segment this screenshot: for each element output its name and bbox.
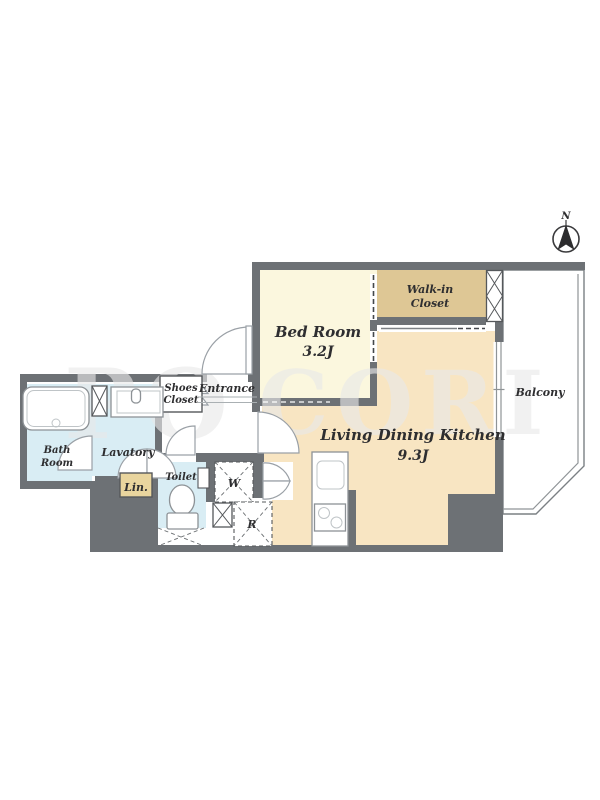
- kitchen-counter: [312, 452, 348, 546]
- compass: N: [553, 211, 579, 252]
- pipe-space-wr: [213, 503, 232, 527]
- washer-door-bottom: [263, 481, 290, 499]
- ldk-label: Living Dining Kitchen: [319, 426, 505, 444]
- entrance-door-leaf: [246, 326, 252, 374]
- bedroom-size: 3.2J: [303, 344, 335, 360]
- toilet-counter-box: [198, 468, 209, 488]
- bedroom-wic-slider: [370, 274, 377, 320]
- lavatory-label: Lavatory: [101, 446, 157, 459]
- shoes-closet-label-2: Closet: [163, 395, 198, 406]
- balcony-label: Balcony: [514, 386, 566, 399]
- bath-label-2: Room: [40, 458, 73, 469]
- ldk-size: 9.3J: [398, 448, 430, 464]
- washer-mark: W: [228, 477, 242, 490]
- shoes-closet-label-1: Shoes: [164, 383, 198, 394]
- washer-door-top: [263, 463, 290, 481]
- linen-label: Lin.: [123, 481, 148, 494]
- toilet-label: Toilet: [165, 472, 197, 483]
- shoes-closet-box: [160, 376, 202, 412]
- toilet-service-area: [158, 528, 204, 546]
- refrigerator-mark: R: [246, 518, 256, 531]
- pipe-space-bath: [92, 386, 107, 416]
- bathtub: [23, 387, 89, 430]
- bedroom-label: Bed Room: [274, 323, 361, 341]
- entrance-label: Entrance: [198, 382, 255, 395]
- floorplan-drawing: PO CORI: [0, 0, 600, 800]
- wic-label-1: Walk-in: [407, 283, 454, 296]
- bath-label-1: Bath: [43, 445, 71, 456]
- floorplan-page: PO CORI: [0, 0, 600, 800]
- wic-label-2: Closet: [411, 297, 450, 310]
- pipe-space-wic: [487, 271, 503, 322]
- entrance-door-swing: [202, 327, 249, 374]
- vanity-sink: [111, 387, 163, 417]
